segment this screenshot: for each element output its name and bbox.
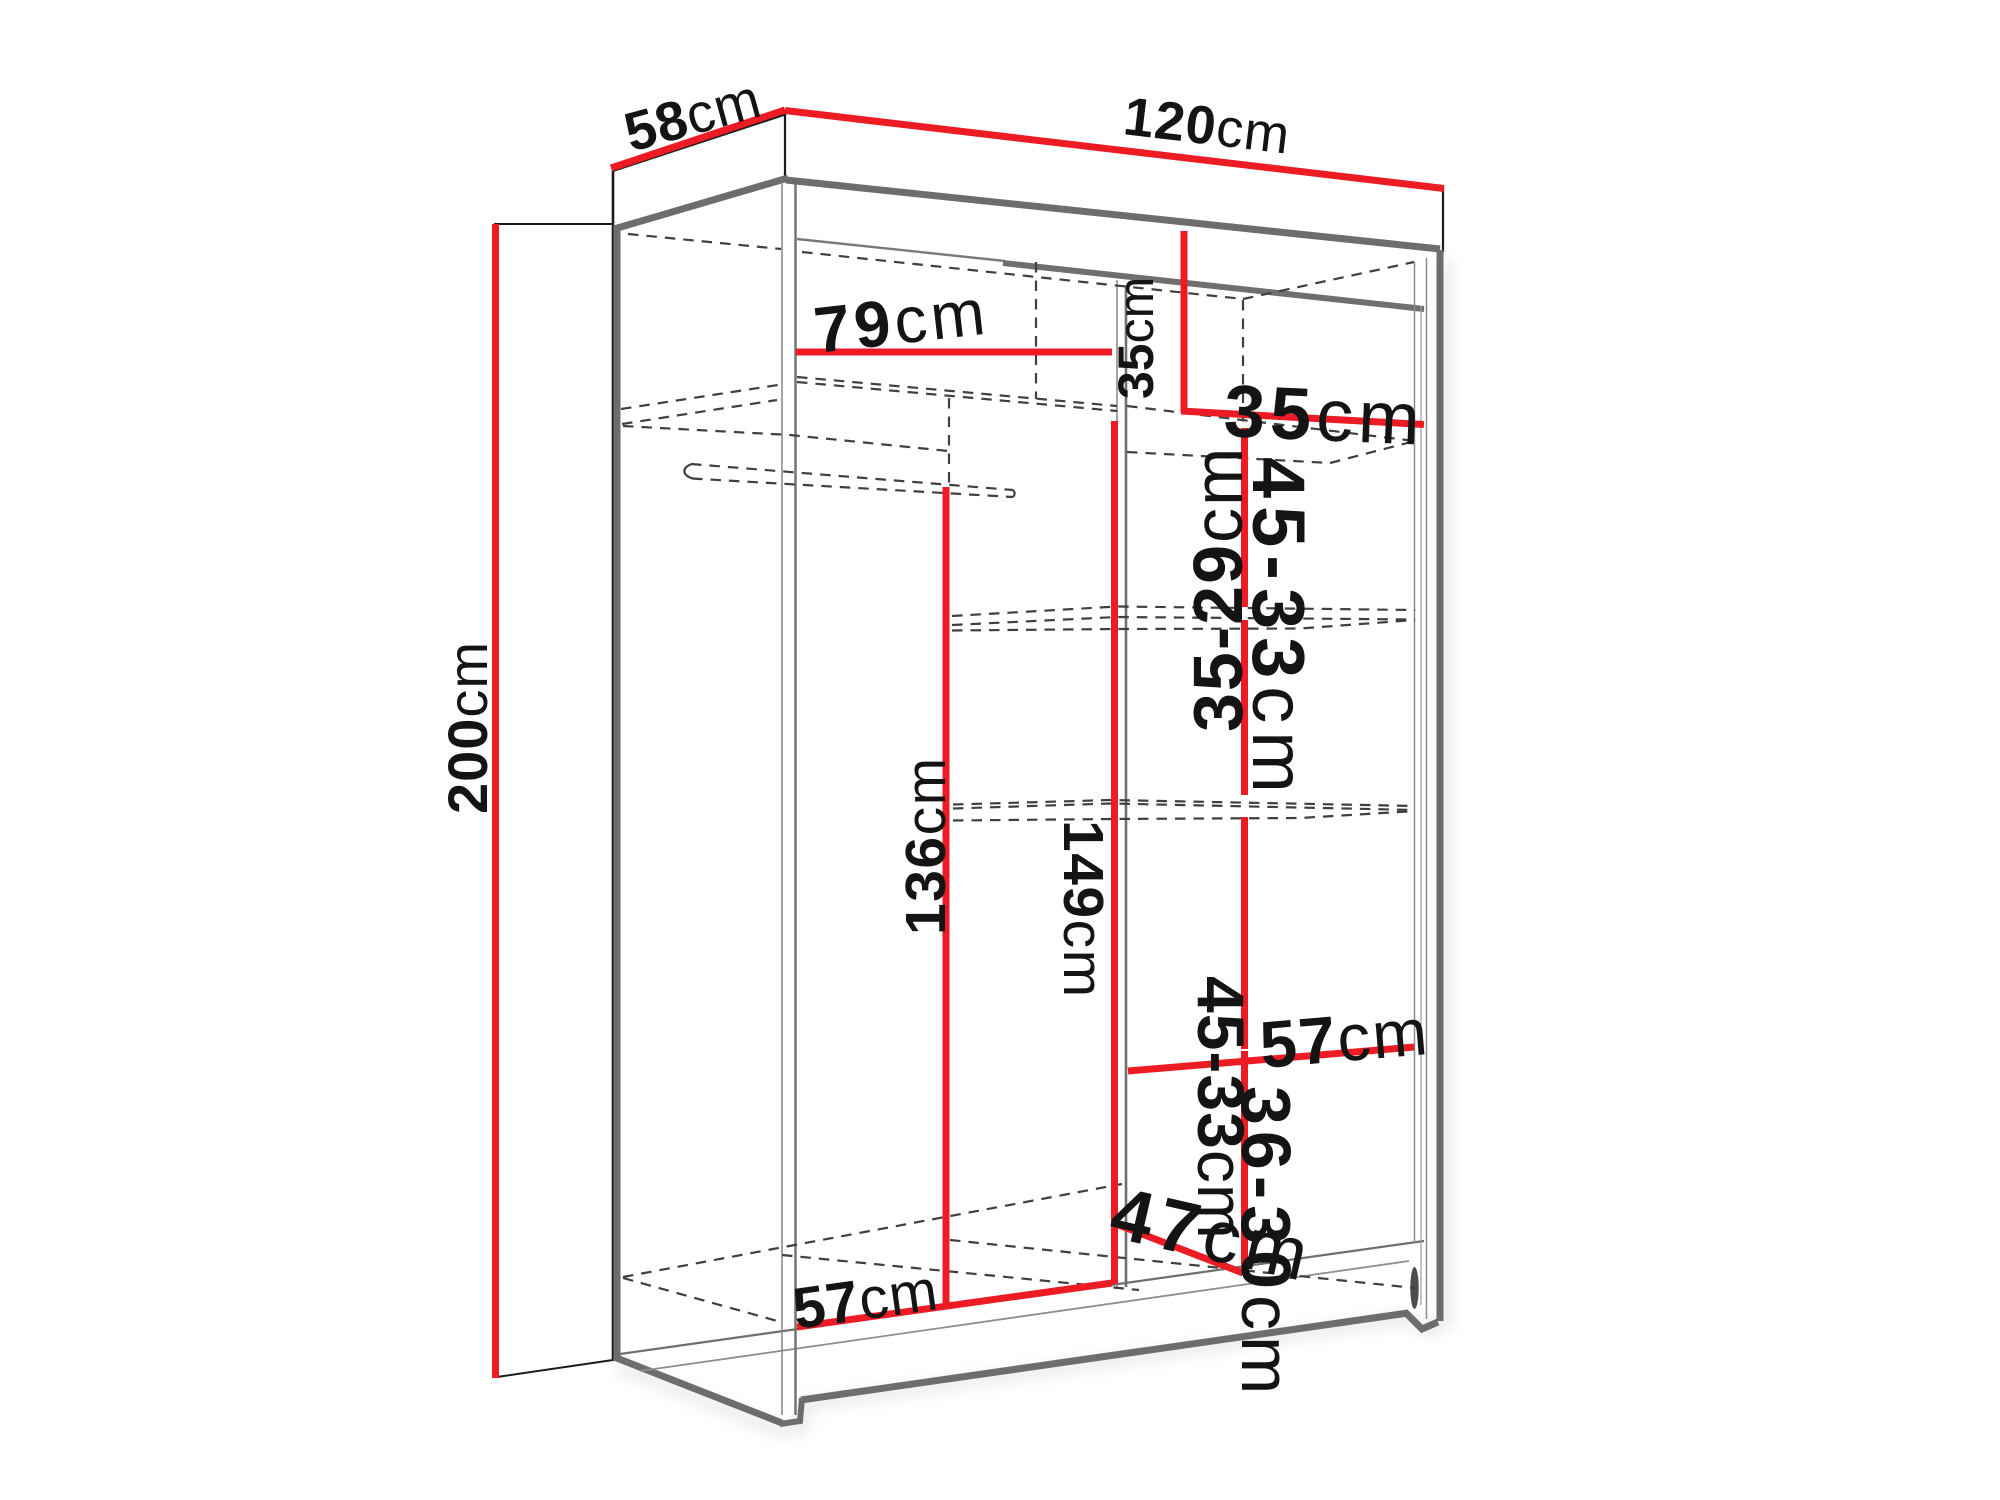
svg-text:149cm: 149cm (1051, 820, 1115, 999)
svg-text:200cm: 200cm (436, 641, 499, 814)
svg-text:136cm: 136cm (894, 756, 958, 935)
svg-text:35cm: 35cm (1108, 277, 1164, 399)
svg-text:45-33cm: 45-33cm (1237, 457, 1320, 801)
svg-text:57cm: 57cm (1257, 994, 1432, 1082)
